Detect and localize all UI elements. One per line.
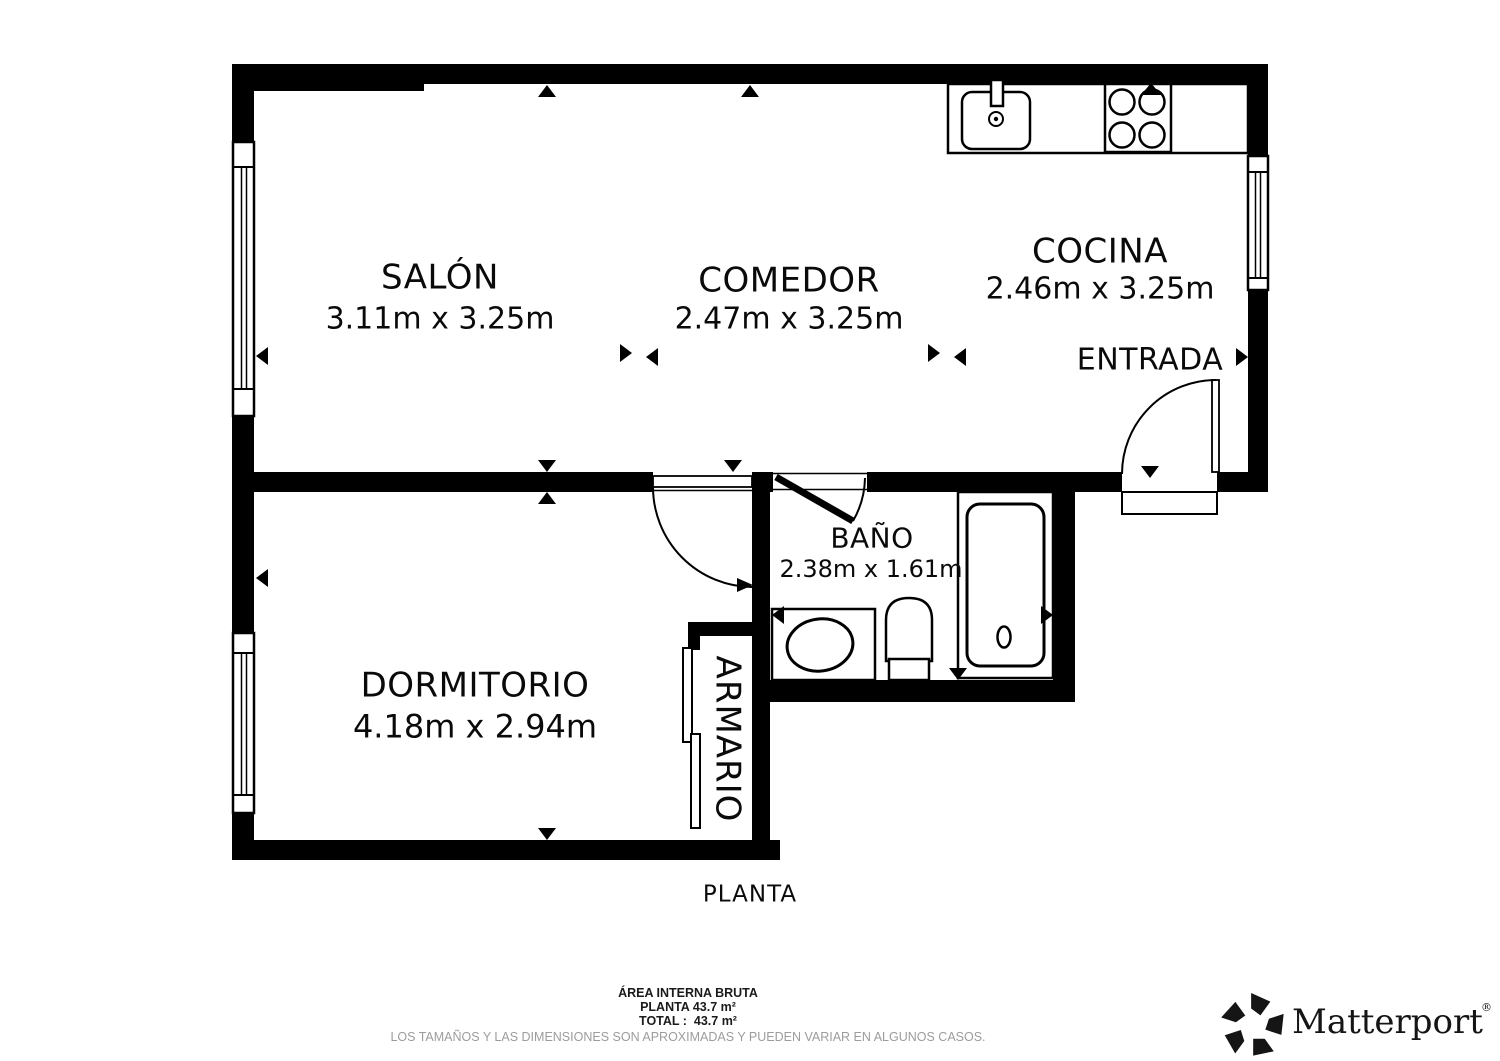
marker-up-icon bbox=[741, 85, 759, 97]
sliding-panel-2 bbox=[691, 734, 700, 828]
washbasin bbox=[772, 609, 875, 680]
wall-right-lower bbox=[1248, 290, 1268, 492]
marker-left-icon bbox=[256, 347, 268, 365]
cocina-dimensions: 2.46m x 3.25m bbox=[986, 273, 1215, 306]
bathroom-door-leaf bbox=[776, 477, 853, 521]
entrada-label: ENTRADA bbox=[1077, 344, 1223, 377]
bathtub bbox=[958, 492, 1053, 678]
area-planta-value: PLANTA 43.7 m² bbox=[640, 1001, 736, 1015]
dormitorio-door bbox=[653, 476, 753, 592]
wall-bath-bottom bbox=[770, 680, 1075, 702]
dormitorio-label: DORMITORIO bbox=[361, 667, 590, 704]
marker-down-icon bbox=[1141, 466, 1159, 478]
marker-right-icon bbox=[1236, 348, 1248, 366]
burner-icon bbox=[1110, 123, 1135, 148]
window-cocina-right bbox=[1248, 156, 1268, 290]
marker-left-icon bbox=[256, 569, 268, 587]
wall-bath-right bbox=[1053, 492, 1075, 702]
registered-mark-icon: ® bbox=[1481, 1001, 1492, 1014]
dormitorio-door-leaf bbox=[653, 476, 752, 487]
bano-label: BAÑO bbox=[830, 524, 913, 555]
sink-drain-dot bbox=[994, 117, 998, 121]
wall-left-middle bbox=[232, 416, 254, 633]
armario-sliding-door bbox=[683, 648, 700, 828]
bano-dimensions: 2.38m x 1.61m bbox=[779, 556, 962, 582]
dormitorio-door-arc bbox=[653, 487, 752, 587]
matterport-wordmark: Matterport bbox=[1292, 1002, 1483, 1042]
wall-right-upper bbox=[1248, 64, 1268, 156]
marker-down-icon bbox=[538, 460, 556, 472]
bathtub-drain-icon bbox=[998, 627, 1011, 648]
entrance-door-leaf bbox=[1212, 380, 1219, 472]
area-title: ÁREA INTERNA BRUTA bbox=[618, 987, 758, 1001]
marker-up-icon bbox=[538, 85, 556, 97]
marker-down-icon bbox=[538, 828, 556, 840]
marker-left-icon bbox=[954, 348, 966, 366]
salon-dimensions: 3.11m x 3.25m bbox=[326, 303, 555, 336]
bathroom-door bbox=[773, 474, 867, 522]
wall-divider-left bbox=[232, 472, 653, 492]
dormitorio-dimensions: 4.18m x 2.94m bbox=[353, 709, 597, 744]
area-total-value: TOTAL : 43.7 m² bbox=[639, 1015, 737, 1029]
floor-label: PLANTA bbox=[703, 882, 797, 907]
burner-icon bbox=[1110, 90, 1135, 115]
comedor-label: COMEDOR bbox=[698, 262, 879, 299]
wall-divider-right bbox=[1217, 472, 1268, 492]
faucet-icon bbox=[991, 80, 1003, 106]
wall-top bbox=[232, 64, 1268, 84]
cocina-label: COCINA bbox=[1032, 233, 1168, 270]
entrance-threshold bbox=[1122, 492, 1217, 514]
burner-icon bbox=[1140, 123, 1165, 148]
entrance-door-arc bbox=[1122, 380, 1216, 474]
marker-up-icon bbox=[538, 492, 556, 504]
matterport-logo-icon bbox=[1220, 993, 1290, 1061]
marker-left-icon bbox=[646, 348, 658, 366]
window-dormitorio-left bbox=[233, 633, 254, 813]
salon-label: SALÓN bbox=[381, 259, 499, 296]
floorplan-page: SALÓN 3.11m x 3.25m COMEDOR 2.47m x 3.25… bbox=[0, 0, 1500, 1061]
comedor-dimensions: 2.47m x 3.25m bbox=[675, 303, 904, 336]
marker-right-icon bbox=[620, 344, 632, 362]
disclaimer-text: LOS TAMAÑOS Y LAS DIMENSIONES SON APROXI… bbox=[390, 1031, 985, 1045]
bathroom-fixtures bbox=[772, 492, 1053, 680]
wall-divider-center bbox=[867, 472, 1122, 492]
toilet bbox=[886, 598, 932, 680]
wall-left-upper bbox=[232, 64, 254, 142]
marker-down-icon bbox=[724, 460, 742, 472]
wall-top-thick-segment bbox=[232, 84, 424, 91]
window-salon-left bbox=[233, 142, 254, 416]
marker-right-icon bbox=[928, 344, 940, 362]
wall-hall-armario-right bbox=[752, 472, 770, 860]
wall-armario-top bbox=[688, 622, 770, 636]
kitchen-fixtures bbox=[948, 80, 1248, 153]
entrance-door bbox=[1122, 380, 1219, 514]
sliding-panel-1 bbox=[683, 648, 692, 742]
bathroom-door-arc bbox=[853, 478, 865, 521]
wall-bottom bbox=[232, 840, 780, 860]
dormitorio-door-arrow bbox=[737, 578, 753, 592]
armario-label: ARMARIO bbox=[708, 656, 745, 823]
